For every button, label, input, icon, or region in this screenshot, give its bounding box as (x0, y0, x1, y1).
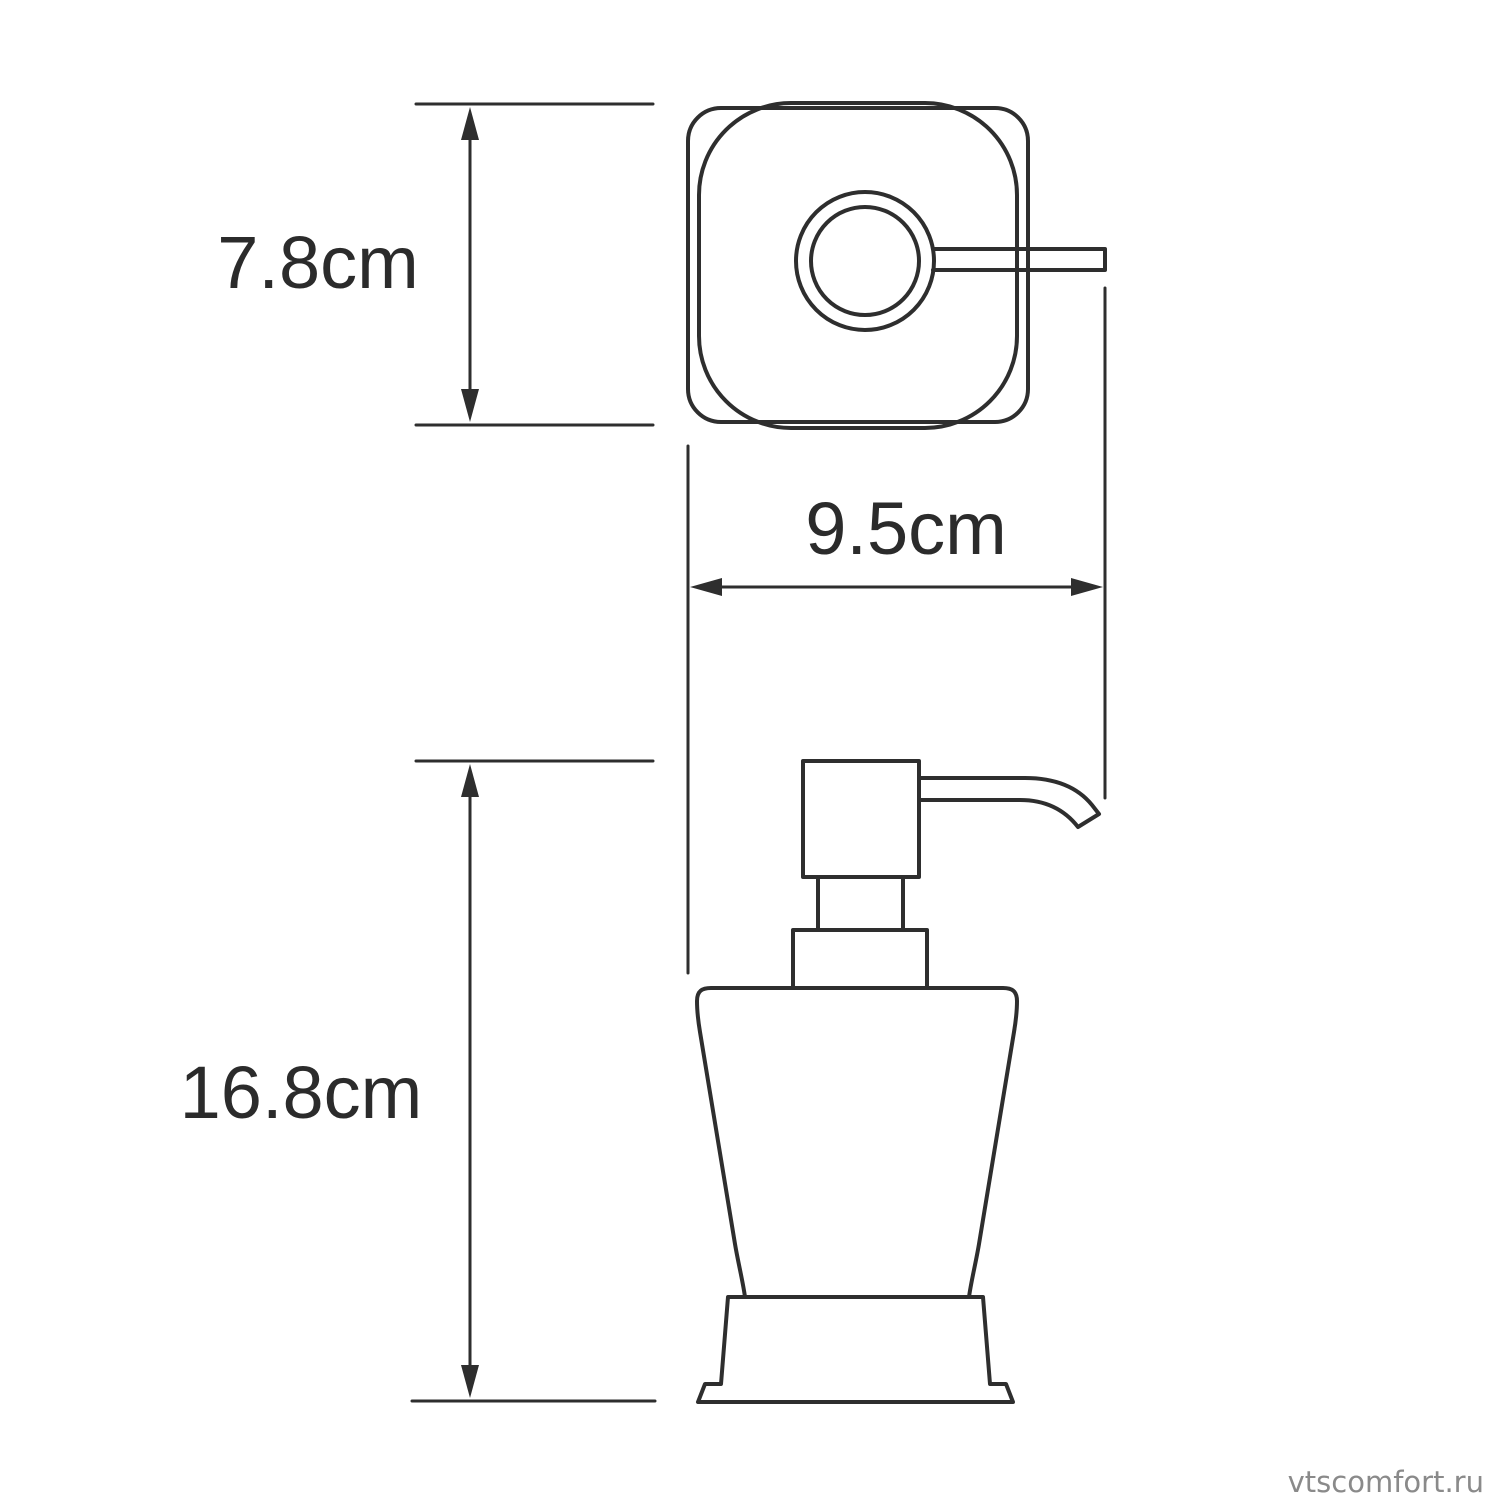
top-view-pump-outer-ring (796, 192, 934, 330)
arrow-up-icon (461, 107, 479, 140)
dimension-overall-width (688, 288, 1105, 973)
label-body-height: 16.8cm (180, 1051, 423, 1134)
side-view-spout (919, 778, 1099, 827)
arrow-right-icon (1071, 578, 1103, 596)
top-view-outer-body (688, 108, 1028, 422)
dimension-body-height (412, 761, 655, 1401)
arrow-down-icon (461, 1365, 479, 1398)
side-view (697, 761, 1099, 1402)
dimension-lines (412, 104, 1105, 1401)
arrow-down-icon (461, 389, 479, 422)
label-top-view-depth: 7.8cm (217, 221, 419, 304)
top-view-pump-inner-ring (811, 207, 919, 315)
dimension-drawing-canvas: 7.8cm 9.5cm 16.8cm vtscomfort.ru (0, 0, 1496, 1506)
arrow-left-icon (690, 578, 722, 596)
dimension-labels: 7.8cm 9.5cm 16.8cm (180, 221, 1007, 1134)
top-view-inner-body (699, 103, 1017, 428)
label-overall-width: 9.5cm (805, 487, 1007, 570)
side-view-pump-head (803, 761, 919, 877)
side-view-body (697, 988, 1017, 1297)
outline-layer (412, 103, 1105, 1402)
arrow-up-icon (461, 764, 479, 797)
dimension-top-view-depth (416, 104, 653, 425)
side-view-pump-collar (793, 930, 927, 988)
watermark: vtscomfort.ru (1288, 1465, 1484, 1499)
top-view (688, 103, 1105, 428)
arrowheads (461, 107, 1103, 1398)
soap-dispenser-dimension-drawing: 7.8cm 9.5cm 16.8cm vtscomfort.ru (0, 0, 1496, 1506)
side-view-base (698, 1297, 1013, 1402)
side-view-pump-neck (818, 877, 903, 930)
